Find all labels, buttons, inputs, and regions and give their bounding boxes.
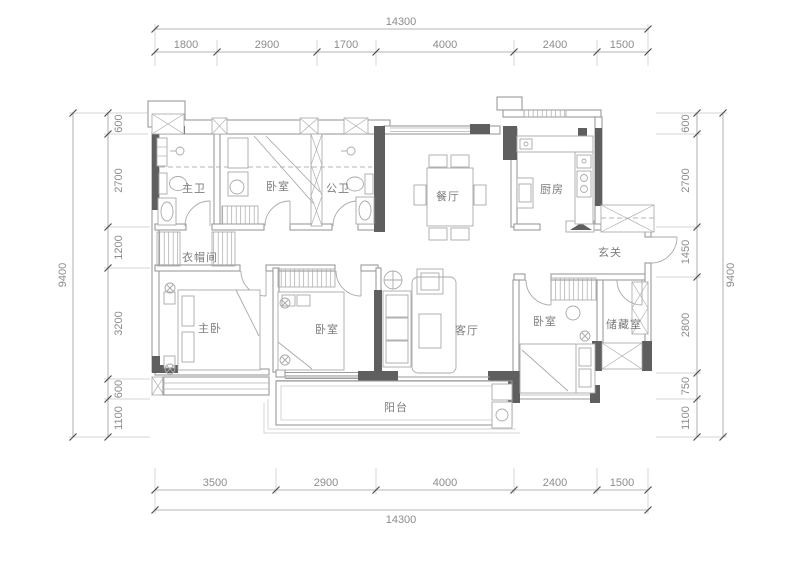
dim-top-seg-5: 2400 (543, 39, 567, 51)
room-label-public-bath: 公卫 (326, 183, 350, 195)
wardrobe-icon (278, 269, 335, 287)
floor-plan-page: 14300 1800 2900 1700 4000 2400 1500 3500… (0, 0, 800, 558)
dim-top-seg-4: 4000 (433, 39, 457, 51)
room-label-dining: 餐厅 (436, 189, 460, 203)
dim-right-seg-3: 1450 (680, 240, 692, 264)
dim-left-seg-3: 1200 (113, 235, 125, 259)
dresser-icon (222, 206, 258, 224)
master-bath-fixtures (157, 138, 187, 225)
dim-top-seg-6: 1500 (610, 39, 634, 51)
dimension-bottom: 3500 2900 4000 2400 1500 14300 (152, 468, 652, 526)
shower-icon (176, 147, 184, 155)
dimension-left: 9400 600 2700 1200 3200 600 1100 (57, 110, 150, 441)
kitchen-window (524, 110, 566, 117)
washing-machine-icon (492, 384, 512, 428)
room-label-storage: 储藏室 (606, 317, 642, 331)
room-label-entry: 玄关 (598, 245, 622, 259)
kitchen-fixtures (517, 136, 593, 224)
toilet-icon (159, 173, 167, 194)
living-furniture (383, 269, 456, 373)
dim-top-seg-2: 2900 (255, 39, 279, 51)
dim-right-seg-2: 2700 (680, 168, 692, 192)
dimension-top: 14300 1800 2900 1700 4000 2400 1500 (152, 16, 652, 66)
dim-left-seg-5: 600 (113, 380, 125, 398)
dim-bottom-seg-5: 1500 (610, 477, 634, 489)
bedroom-top-furniture (222, 136, 320, 224)
dim-right-total: 9400 (725, 263, 737, 287)
room-label-balcony: 阳台 (384, 400, 408, 414)
dim-right-seg-4: 2800 (680, 313, 692, 337)
room-label-bedroom-top: 卧室 (266, 179, 290, 193)
room-label-kitchen: 厨房 (540, 183, 564, 196)
bay-bump-kitchen (497, 97, 522, 110)
floor-plan-drawing: 14300 1800 2900 1700 4000 2400 1500 3500… (0, 0, 800, 558)
dim-left-total: 9400 (57, 263, 69, 287)
room-label-bedroom-mid: 卧室 (315, 322, 339, 336)
wardrobe-icon (551, 278, 596, 300)
dim-left-seg-1: 600 (113, 114, 125, 132)
dim-left-seg-2: 2700 (113, 168, 125, 192)
dim-top-seg-3: 1700 (334, 39, 358, 51)
room-label-master-bedroom: 主卧 (198, 322, 222, 335)
shower-icon (347, 147, 355, 155)
dim-bottom-seg-1: 3500 (203, 477, 227, 489)
coffee-table-icon (419, 314, 441, 348)
room-label-bedroom-right: 卧室 (533, 314, 557, 328)
dim-bottom-seg-2: 2900 (314, 477, 338, 489)
master-bay-window (163, 377, 269, 395)
dimension-right: 600 2700 1450 2800 750 1100 9400 (656, 110, 737, 441)
room-label-cloakroom: 衣帽间 (182, 250, 218, 264)
dim-bottom-seg-4: 2400 (543, 477, 567, 489)
dim-bottom-seg-3: 4000 (433, 477, 457, 489)
dim-right-seg-5: 750 (680, 377, 692, 395)
dim-bottom-total: 14300 (386, 514, 417, 526)
stool-icon (566, 306, 580, 320)
room-label-living: 客厅 (455, 323, 479, 337)
dim-left-seg-4: 3200 (113, 311, 125, 335)
dim-top-seg-1: 1800 (174, 39, 198, 51)
room-label-master-bath: 主卫 (182, 182, 206, 195)
bedroom-mid-furniture (278, 269, 344, 370)
wardrobe-icon (157, 232, 180, 266)
dim-top-total: 14300 (386, 16, 417, 28)
dim-right-seg-6: 1100 (680, 406, 692, 430)
toilet-icon (365, 174, 373, 194)
dim-right-seg-1: 600 (680, 114, 692, 132)
dim-left-seg-6: 1100 (113, 406, 125, 430)
